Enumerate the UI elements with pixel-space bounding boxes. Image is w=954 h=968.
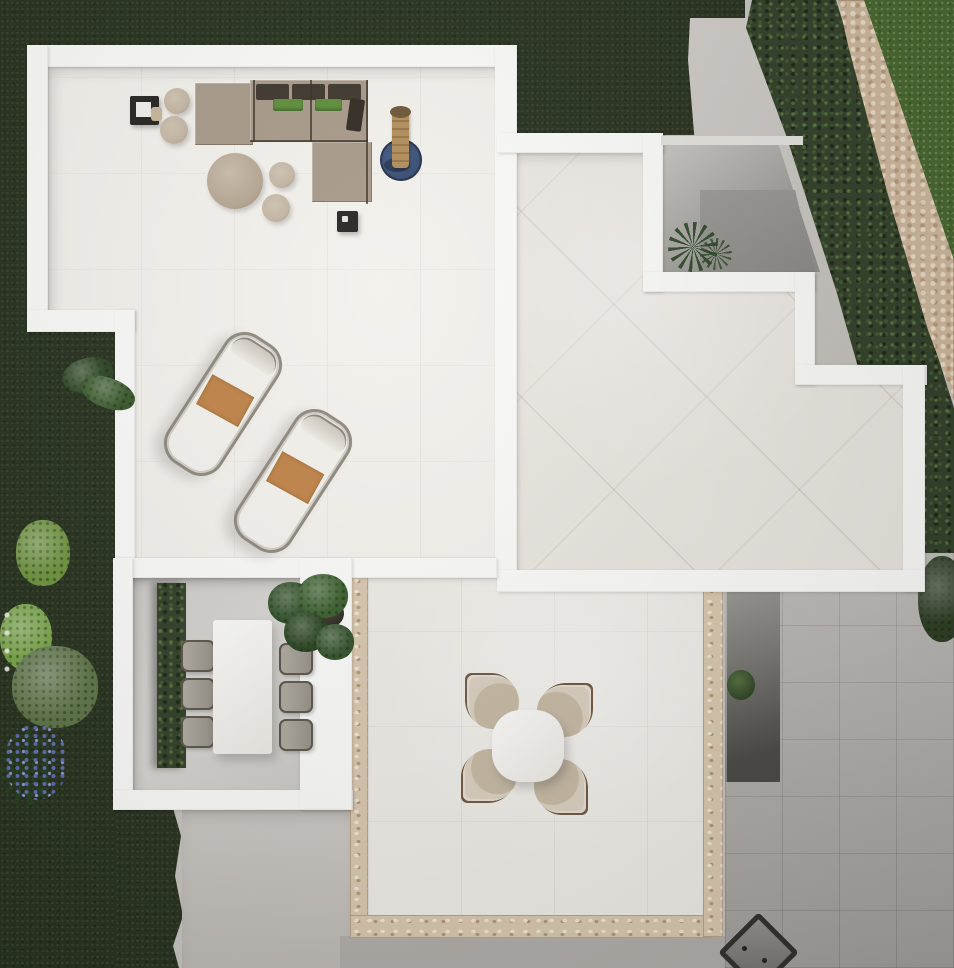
sofa-back-cushion bbox=[256, 84, 289, 100]
dining-chair bbox=[181, 678, 215, 710]
sofa-frame-edge bbox=[250, 140, 368, 142]
sofa-back-cushion bbox=[292, 84, 325, 100]
aerial-villa-render bbox=[0, 0, 954, 968]
pouf-small bbox=[160, 116, 188, 144]
wall-left-upper bbox=[27, 45, 48, 332]
flower-cluster-blue bbox=[4, 724, 68, 800]
pebble-strip-left bbox=[350, 575, 368, 938]
wall-upper-terrace-bottom bbox=[497, 570, 925, 592]
stairwell-plant-pot bbox=[727, 670, 755, 700]
lounger-towel bbox=[266, 451, 324, 504]
sofa-seam bbox=[253, 80, 255, 142]
sofa-corner-return bbox=[312, 142, 372, 202]
coffee-table-round bbox=[207, 153, 263, 209]
courtyard-top-edge bbox=[661, 136, 803, 145]
side-table-round bbox=[269, 162, 295, 188]
patio-heater-column bbox=[392, 111, 409, 168]
wall-left-mid bbox=[115, 310, 135, 560]
dining-plant-foliage bbox=[316, 624, 354, 660]
wall-step1-horizontal bbox=[643, 272, 815, 292]
sofa-back-cushion bbox=[328, 84, 361, 100]
wall-upper-terrace-top bbox=[497, 133, 663, 153]
dining-chair bbox=[279, 719, 313, 751]
fire-pit-bolt bbox=[762, 958, 767, 963]
fire-pit-bolt bbox=[742, 946, 747, 951]
dining-chair bbox=[181, 716, 215, 748]
pouf-small bbox=[164, 88, 190, 114]
tray-napkin bbox=[136, 102, 151, 117]
dining-chair bbox=[181, 640, 215, 672]
sofa-seam bbox=[310, 80, 312, 142]
tray-jug bbox=[151, 107, 162, 121]
wall-dining-left bbox=[113, 558, 133, 810]
dining-chair bbox=[279, 681, 313, 713]
sofa-chaise-module bbox=[195, 83, 253, 145]
wall-courtyard-left bbox=[643, 133, 663, 292]
sofa-green-cushion bbox=[273, 99, 303, 111]
sofa-frame-edge bbox=[366, 80, 368, 204]
pebble-strip-right bbox=[703, 585, 723, 937]
sofa-green-cushion bbox=[315, 99, 342, 111]
garden-bush bbox=[16, 520, 70, 586]
flower-cluster-white bbox=[0, 606, 18, 678]
lawn-bottom-left bbox=[115, 806, 185, 968]
wall-center-vertical bbox=[495, 45, 517, 573]
walkway-bottom-center bbox=[340, 936, 726, 968]
dining-table bbox=[213, 620, 272, 754]
lawn-left-upper bbox=[0, 40, 30, 340]
garden-bush-sage bbox=[12, 646, 98, 728]
patio-table-round bbox=[492, 710, 564, 782]
mini-table-items bbox=[342, 216, 348, 222]
courtyard-palm-plant-small bbox=[700, 238, 732, 270]
wall-right bbox=[903, 365, 925, 592]
lounger-towel bbox=[196, 374, 254, 427]
heater-top-cap bbox=[390, 106, 411, 118]
pebble-strip-bottom bbox=[350, 915, 712, 938]
wall-top bbox=[27, 45, 517, 67]
pouf-small bbox=[262, 194, 290, 222]
walkway-bottom-left bbox=[182, 806, 354, 968]
